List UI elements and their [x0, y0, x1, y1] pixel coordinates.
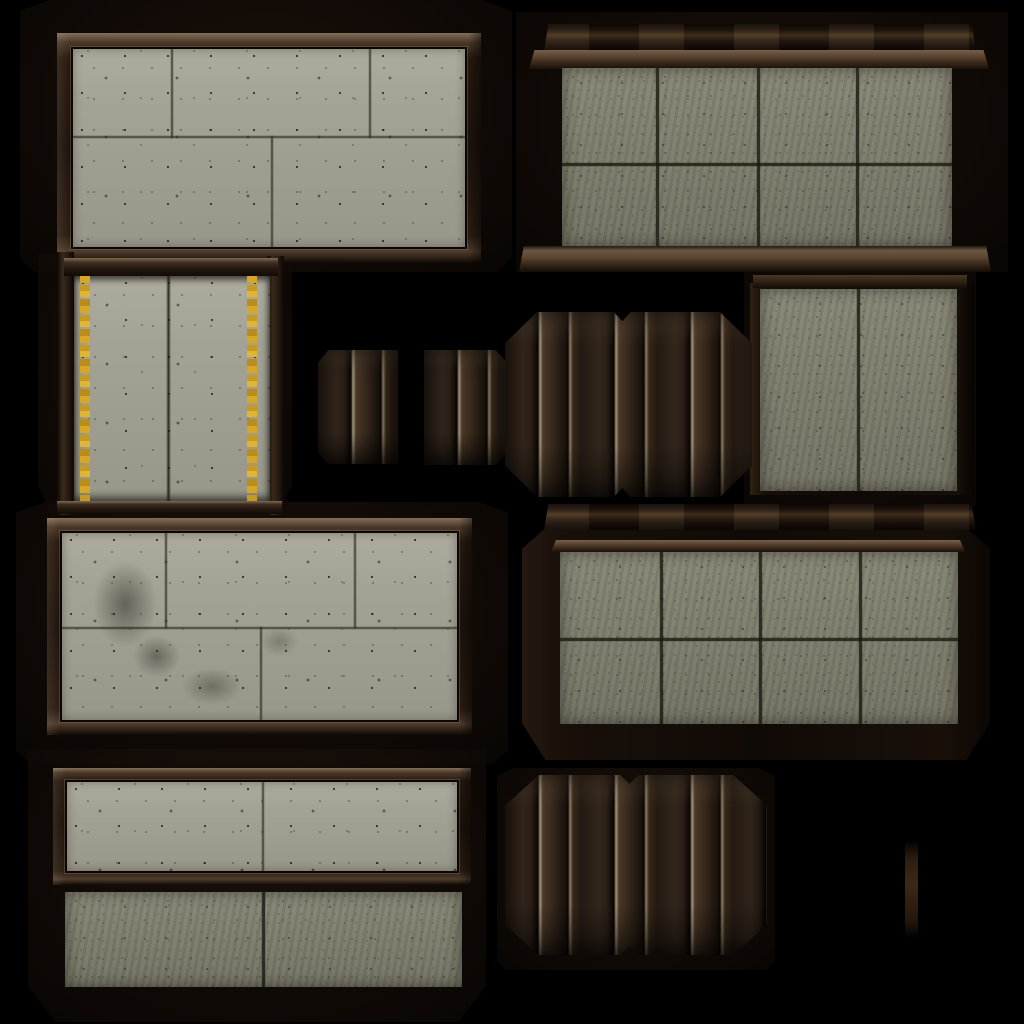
- grout-line-v: [171, 49, 173, 138]
- tiled-concrete-surface: [560, 552, 958, 724]
- grout-line-v: [656, 68, 659, 247]
- grout-line-h: [62, 627, 457, 629]
- grout-line-v: [260, 627, 262, 721]
- frame-post: [57, 252, 74, 515]
- grout-line-v: [262, 892, 265, 987]
- grout-line-h: [560, 638, 958, 641]
- frame-inner-lip: [65, 780, 459, 873]
- grout-line-v: [857, 289, 860, 491]
- concrete-seam: [166, 276, 171, 503]
- concrete-bar-surface: [65, 892, 462, 987]
- cornice-ledge: [551, 540, 965, 552]
- frame-rail: [57, 501, 282, 514]
- frame-rail: [64, 258, 278, 276]
- concrete-surface: [62, 533, 457, 720]
- grout-line-v: [165, 533, 167, 628]
- grout-line-v: [354, 533, 356, 628]
- concrete-surface: [67, 782, 457, 871]
- grout-line-v: [856, 68, 859, 247]
- window-sill: [519, 246, 991, 272]
- thin-wood-strip: [905, 840, 918, 938]
- plank-strip: [318, 350, 398, 464]
- grout-line-v: [262, 782, 264, 871]
- gold-stripe-left: [80, 276, 90, 503]
- plank-strip: [424, 350, 507, 465]
- grout-line-v: [369, 49, 371, 138]
- framed-concrete-panel-center-left: [47, 518, 472, 735]
- tiled-concrete-surface: [562, 68, 952, 247]
- grout-line-h: [562, 163, 952, 166]
- cornice-cap: [544, 504, 976, 530]
- cornice-cap: [544, 24, 976, 52]
- cornice-ledge: [529, 50, 989, 69]
- frame-inner-lip: [71, 47, 467, 249]
- octagonal-plank-panel: [505, 775, 767, 955]
- grout-line-h: [73, 136, 465, 138]
- concrete-column-surface: [760, 289, 957, 491]
- frame-inner-lip: [60, 531, 459, 722]
- concrete-surface: [73, 49, 465, 247]
- grout-line-v: [757, 68, 760, 247]
- framed-concrete-bar: [53, 768, 471, 885]
- column-subsill: [753, 275, 967, 288]
- grout-line-v: [271, 136, 273, 247]
- gold-stripe-right: [247, 276, 257, 503]
- hazard-striped-concrete: [74, 276, 270, 503]
- octagonal-plank-panel: [505, 312, 752, 497]
- texture-atlas-canvas: [0, 0, 1024, 1024]
- framed-concrete-panel-top-left: [57, 33, 481, 263]
